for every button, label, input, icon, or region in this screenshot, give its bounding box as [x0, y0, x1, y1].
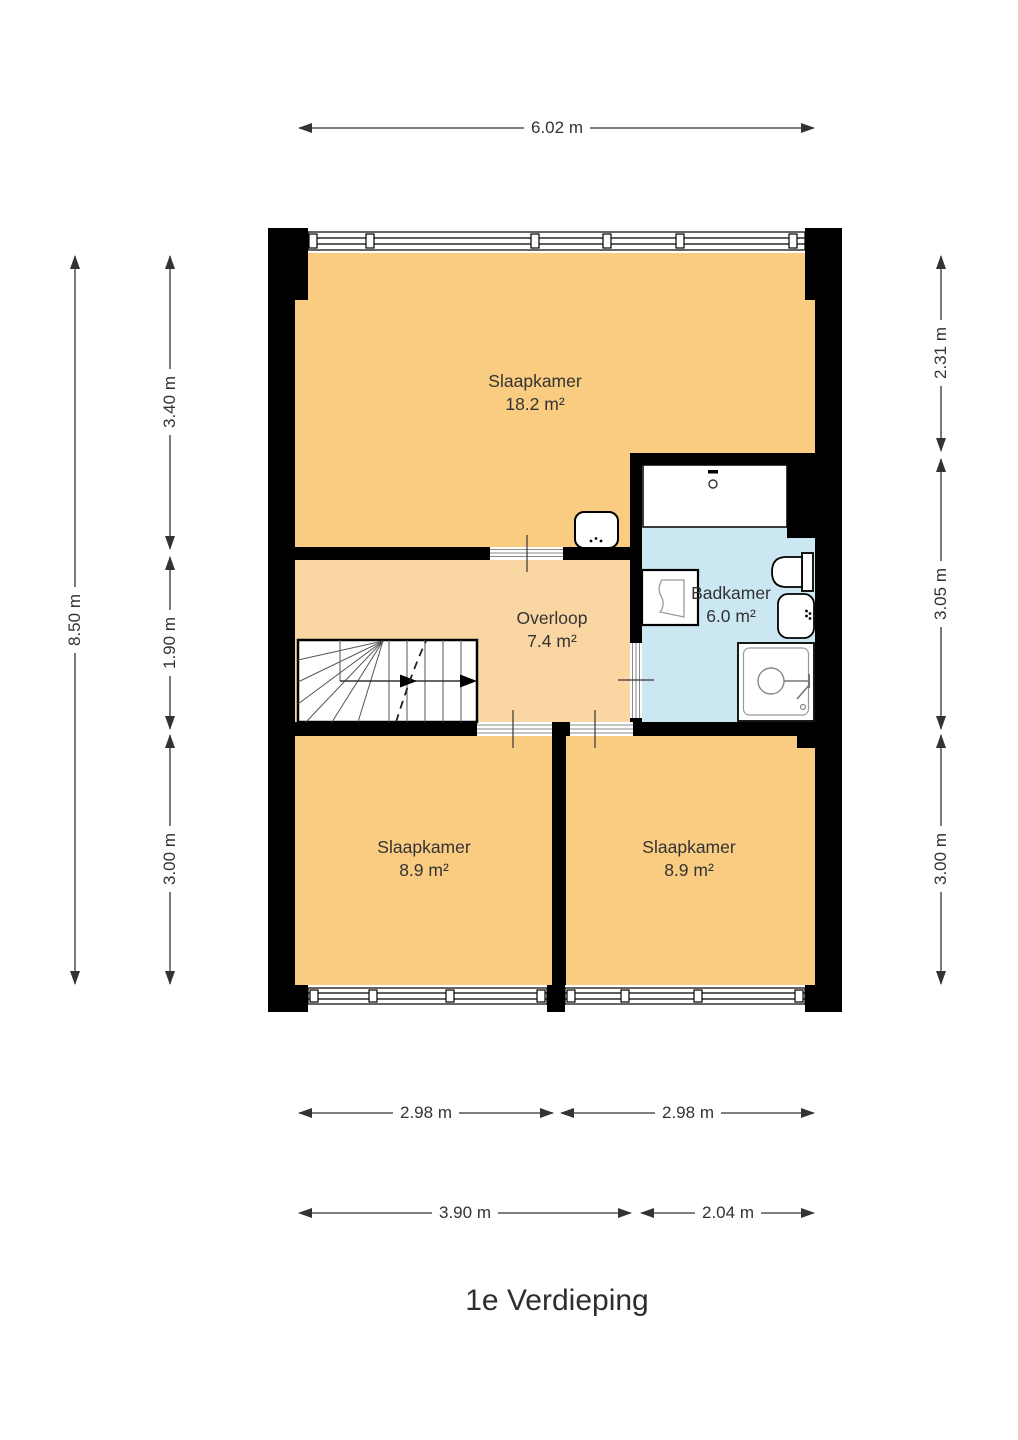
window-top [308, 232, 805, 250]
wall-mid-bedrooms [552, 736, 566, 985]
dim-label-right-2: 3.05 m [931, 561, 951, 627]
wall-left [268, 228, 295, 1012]
wall-niche-top [630, 453, 815, 465]
wall-corner-bottomleft [268, 985, 308, 1012]
dim-label-right-1: 2.31 m [931, 320, 951, 386]
dim-label-left-3: 3.00 m [160, 826, 180, 892]
window-bottom-left [308, 988, 547, 1004]
dim-label-bottom-room-right: 2.98 m [655, 1103, 721, 1123]
wall-overloop-a [295, 547, 490, 560]
wall-right [815, 228, 842, 1012]
dim-label-left-outer: 8.50 m [65, 587, 85, 653]
dim-label-right-3: 3.00 m [931, 826, 951, 892]
wall-bottom-c [633, 722, 815, 736]
wall-notch-right-bedroom [797, 736, 815, 748]
wall-bathroom-left-a [630, 453, 642, 643]
wall-niche-right [787, 465, 815, 538]
dim-label-bottom-section-right: 2.04 m [695, 1203, 761, 1223]
room-slaapkamer-right [566, 736, 815, 985]
wall-bottom-a [295, 722, 477, 736]
floorplan-page: 6.02 m 8.50 m 3.40 m 1.90 m 3.00 m 2.31 … [0, 0, 1018, 1440]
bathtub [643, 465, 787, 527]
floor-title: 1e Verdieping [465, 1284, 649, 1318]
dim-label-left-1: 3.40 m [160, 369, 180, 435]
wall-corner-bottomright [805, 985, 842, 1012]
shower [738, 643, 814, 721]
toilet [772, 553, 813, 591]
staircase [298, 640, 477, 722]
wall-corner-topright [805, 228, 842, 300]
room-slaapkamer-left [295, 736, 552, 985]
dim-label-left-2: 1.90 m [160, 610, 180, 676]
window-bottom-right [565, 988, 805, 1004]
washing-machine [642, 570, 698, 625]
floorplan-drawing [0, 0, 1018, 1440]
washbasin [575, 512, 618, 548]
wall-corner-topleft [268, 228, 308, 300]
wall-bottom-mid-block [547, 985, 565, 1012]
dim-label-bottom-room-left: 2.98 m [393, 1103, 459, 1123]
dim-label-bottom-section-left: 3.90 m [432, 1203, 498, 1223]
wall-bottom-b [552, 722, 570, 736]
sink [778, 594, 814, 638]
dim-label-top-width: 6.02 m [524, 118, 590, 138]
